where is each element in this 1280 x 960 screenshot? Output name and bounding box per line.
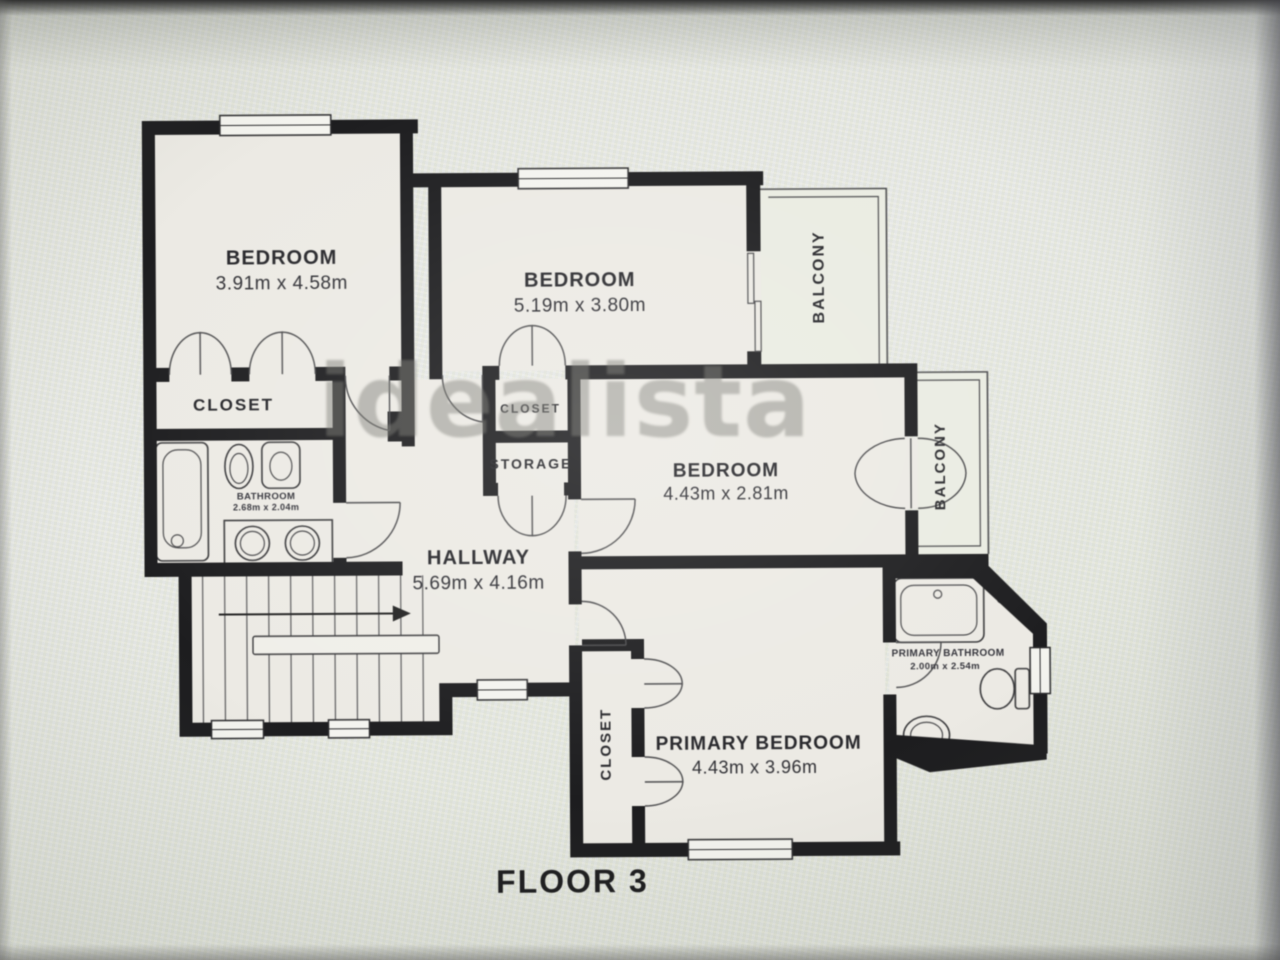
primary-bathroom-dims: 2.00m x 2.54m (910, 661, 980, 672)
bathroom-dims: 2.68m x 2.04m (233, 502, 299, 512)
bedroom1-label: BEDROOM (226, 247, 338, 270)
balcony-right-floor (917, 372, 988, 554)
bedroom2-dims: 5.19m x 3.80m (514, 295, 646, 317)
primary-bedroom-floor (579, 565, 887, 847)
bedroom3-label: BEDROOM (673, 460, 779, 482)
floor-title: FLOOR 3 (496, 863, 649, 900)
balcony-top-label: BALCONY (810, 230, 828, 323)
bedroom1-dims: 3.91m x 4.58m (216, 273, 348, 295)
hallway-dims: 5.69m x 4.16m (412, 573, 544, 595)
hallway-label: HALLWAY (427, 547, 530, 570)
floor-plan-photo: BEDROOM 3.91m x 4.58m BEDROOM 5.19m x 3.… (0, 0, 1280, 960)
primary-closet-label: CLOSET (597, 708, 614, 781)
primary-bathroom-label: PRIMARY BATHROOM (892, 648, 1005, 660)
stair-rail (253, 635, 439, 654)
bedroom2-closet-label: CLOSET (500, 401, 561, 415)
balcony-right-label: BALCONY (932, 422, 950, 510)
bedroom2-label: BEDROOM (524, 269, 636, 292)
storage-label: STORAGE (489, 455, 572, 472)
bathroom-label: BATHROOM (237, 491, 296, 502)
bedroom1-closet-label: CLOSET (193, 395, 274, 414)
floor-plan-drawing: BEDROOM 3.91m x 4.58m BEDROOM 5.19m x 3.… (0, 0, 1280, 960)
bedroom2-balcony-slider (747, 251, 762, 351)
bedroom3-dims: 4.43m x 2.81m (663, 483, 789, 504)
primary-bedroom-label: PRIMARY BEDROOM (656, 733, 862, 755)
primary-bedroom-dims: 4.43m x 3.96m (692, 757, 818, 778)
